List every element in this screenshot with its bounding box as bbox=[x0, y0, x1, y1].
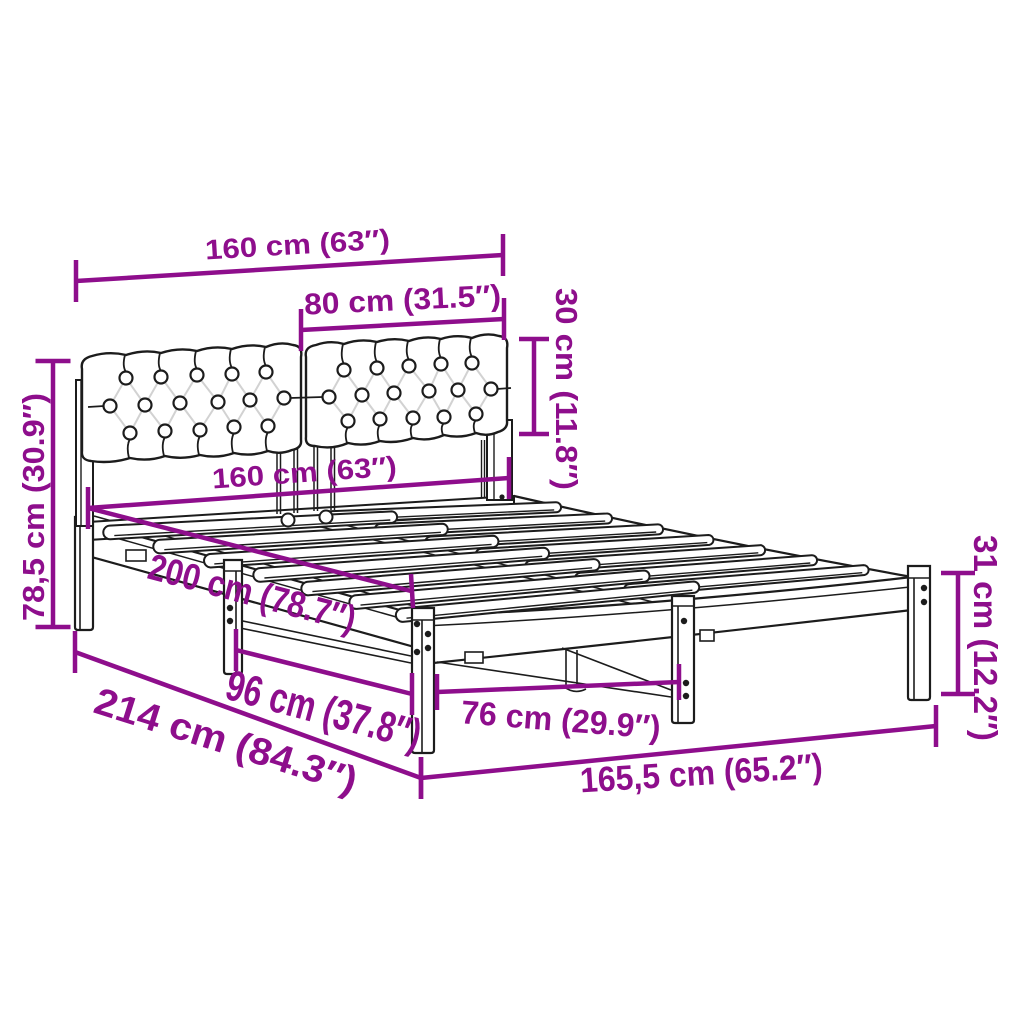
svg-text:30 cm (11.8″): 30 cm (11.8″) bbox=[549, 288, 584, 490]
svg-text:31 cm (12.2″): 31 cm (12.2″) bbox=[967, 535, 1004, 741]
svg-text:78,5 cm (30.9″): 78,5 cm (30.9″) bbox=[16, 393, 51, 621]
